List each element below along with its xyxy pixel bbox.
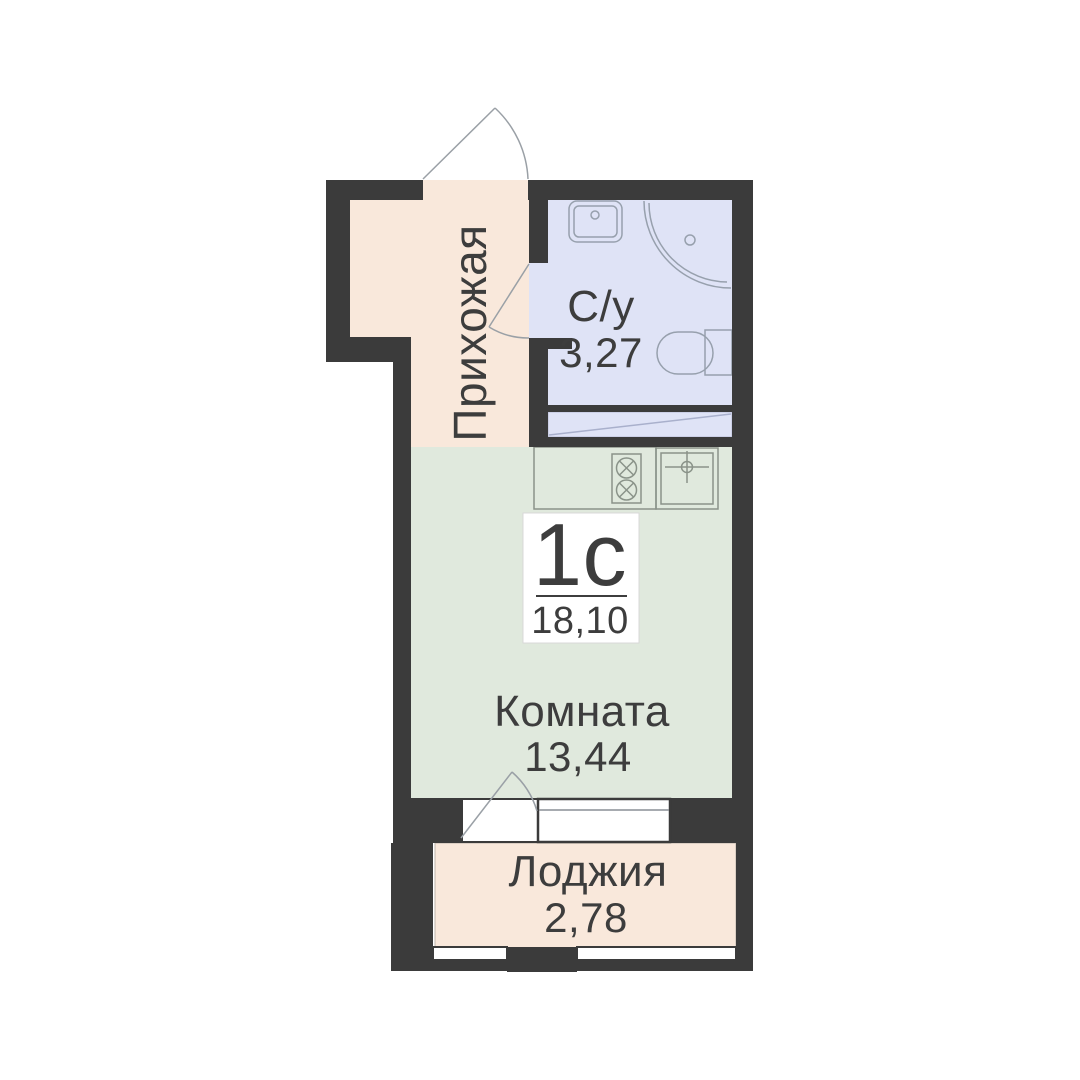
wall (670, 798, 753, 843)
loggia-label: Лоджия (509, 847, 668, 896)
wall (393, 362, 411, 798)
loggia-window-left (433, 947, 507, 960)
bathroom-label: С/у (567, 282, 635, 331)
wall (326, 337, 411, 362)
living-room-label: Комната (494, 687, 670, 736)
entry-door-swing-icon (423, 108, 528, 179)
floor-plan-svg: 1с 18,10 Прихожая С/у 3,27 Комната 13,44… (0, 0, 1080, 1080)
wall (391, 843, 433, 971)
wall (528, 180, 753, 200)
hallway-label: Прихожая (444, 224, 496, 441)
balcony-door (462, 799, 538, 842)
room-loggia-window (538, 799, 670, 842)
wall (326, 180, 423, 200)
living-room-area: 13,44 (524, 733, 632, 780)
wall (529, 338, 548, 447)
total-area-label: 18,10 (531, 600, 629, 642)
apartment-type-label: 1с (533, 505, 627, 604)
bathroom-door-gap (529, 263, 548, 338)
floor-plan-page: 1с 18,10 Прихожая С/у 3,27 Комната 13,44… (0, 0, 1080, 1080)
hallway-floor (350, 180, 529, 447)
wall (736, 843, 753, 971)
apartment-type-badge: 1с 18,10 (523, 505, 639, 643)
wall (548, 405, 732, 412)
bathroom-area: 3,27 (559, 329, 643, 376)
wall (529, 200, 548, 263)
loggia-area: 2,78 (544, 894, 628, 941)
wall (732, 200, 753, 843)
wall (393, 798, 462, 843)
wall (548, 437, 732, 447)
loggia-window-right (577, 947, 736, 960)
